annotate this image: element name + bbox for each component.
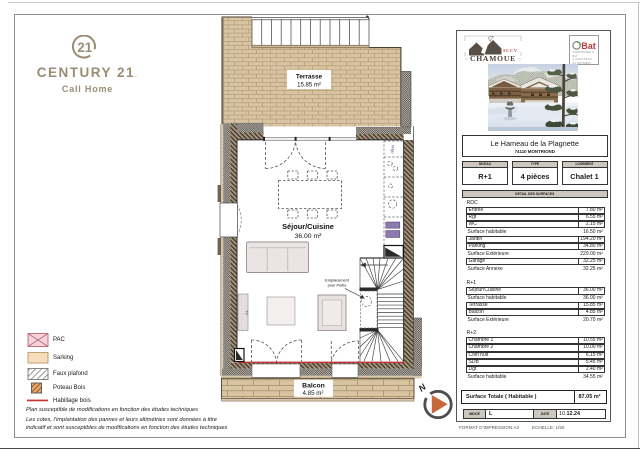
svg-text:Frigo: Frigo: [391, 145, 395, 154]
svg-text:15.85 m²: 15.85 m²: [297, 82, 321, 88]
svg-text:Séjour/Cuisine: Séjour/Cuisine: [282, 222, 334, 231]
svg-text:TV: TV: [245, 310, 250, 315]
svg-text:Terrasse: Terrasse: [296, 74, 323, 81]
svg-text:Balcon: Balcon: [302, 383, 325, 390]
svg-text:CHAMOUE: CHAMOUE: [470, 54, 516, 62]
svg-text:36.00 m²: 36.00 m²: [295, 233, 323, 240]
svg-text:Bat: Bat: [581, 41, 596, 51]
svg-text:SCCV: SCCV: [503, 48, 518, 53]
svg-text:pour Poêle: pour Poêle: [328, 282, 347, 287]
svg-text:4.85 m²: 4.85 m²: [303, 390, 324, 397]
